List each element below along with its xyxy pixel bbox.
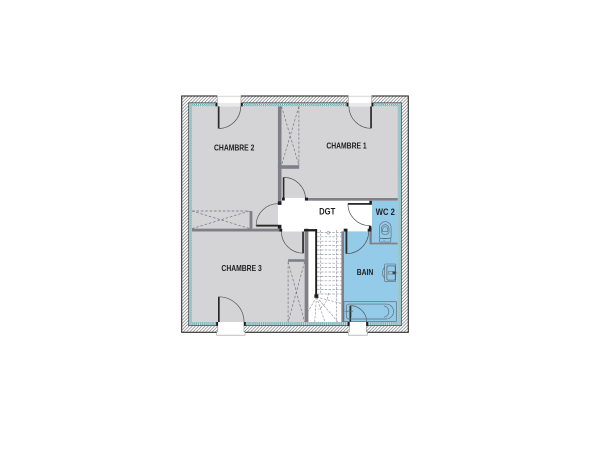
svg-text:BAIN: BAIN	[357, 268, 374, 278]
svg-text:WC 2: WC 2	[376, 206, 395, 217]
svg-text:CHAMBRE 1: CHAMBRE 1	[326, 141, 366, 151]
svg-text:CHAMBRE 2: CHAMBRE 2	[214, 143, 254, 153]
svg-text:CHAMBRE 3: CHAMBRE 3	[221, 264, 261, 274]
svg-text:DGT: DGT	[319, 206, 335, 217]
